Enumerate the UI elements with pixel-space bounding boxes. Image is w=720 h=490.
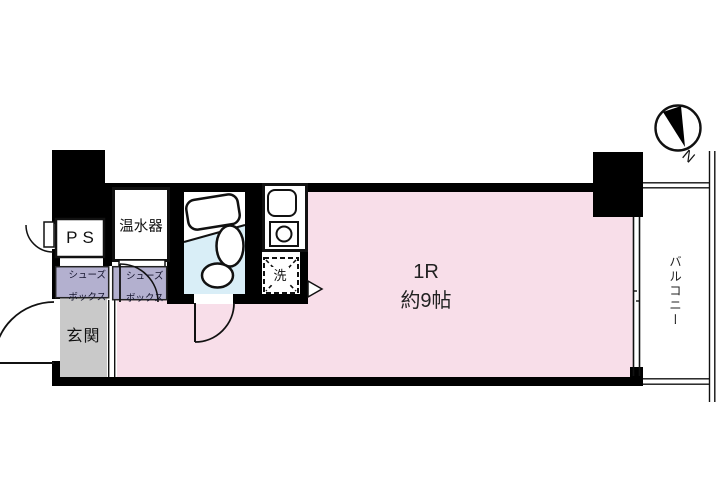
- wall-washer-right: [300, 252, 308, 304]
- ps-label: PS: [55, 218, 105, 258]
- room-label: 1R 約9帖: [334, 257, 518, 317]
- wall-bath-bottom: [233, 294, 308, 304]
- toilet-bowl: [217, 226, 244, 267]
- wall-pillar-top-left: [52, 150, 105, 218]
- toilet-base: [202, 264, 233, 288]
- room-size: 約9帖: [400, 287, 451, 316]
- wall-bath-kitchen: [245, 183, 262, 304]
- shoe-box-right-line1: シューズ: [126, 271, 164, 282]
- shoe-box-left-label: シューズ ボックス: [55, 266, 109, 298]
- shoe-box-right-line2: ボックス: [126, 293, 164, 304]
- wall-bottom-right-step: [630, 367, 643, 378]
- bathroom-door-opening: [194, 294, 233, 304]
- room-type: 1R: [413, 258, 439, 287]
- entrance-label: 玄関: [60, 297, 107, 377]
- washer-label: 洗: [271, 267, 289, 285]
- floor-plan-drawing: [0, 0, 720, 490]
- floor-plan: PS 温水器 シューズ ボックス シューズ ボックス 玄関 洗 1R 約9帖 バ…: [0, 0, 720, 490]
- wall-bottom: [52, 377, 643, 386]
- entrance-door-swing-arc: [0, 302, 54, 362]
- wall-pillar-top-right: [593, 152, 643, 217]
- wall-left: [52, 361, 60, 386]
- ps-door-leaf: [44, 222, 54, 247]
- balcony-label: バルコニー: [664, 241, 681, 341]
- wall-bath-bottom: [184, 294, 194, 304]
- kitchen-burner: [277, 227, 292, 242]
- kitchen-sink: [268, 190, 296, 216]
- water-heater-label: 温水器: [112, 192, 170, 262]
- shoe-box-right-label: シューズ ボックス: [112, 266, 167, 300]
- shoe-box-left-line1: シューズ: [69, 270, 107, 281]
